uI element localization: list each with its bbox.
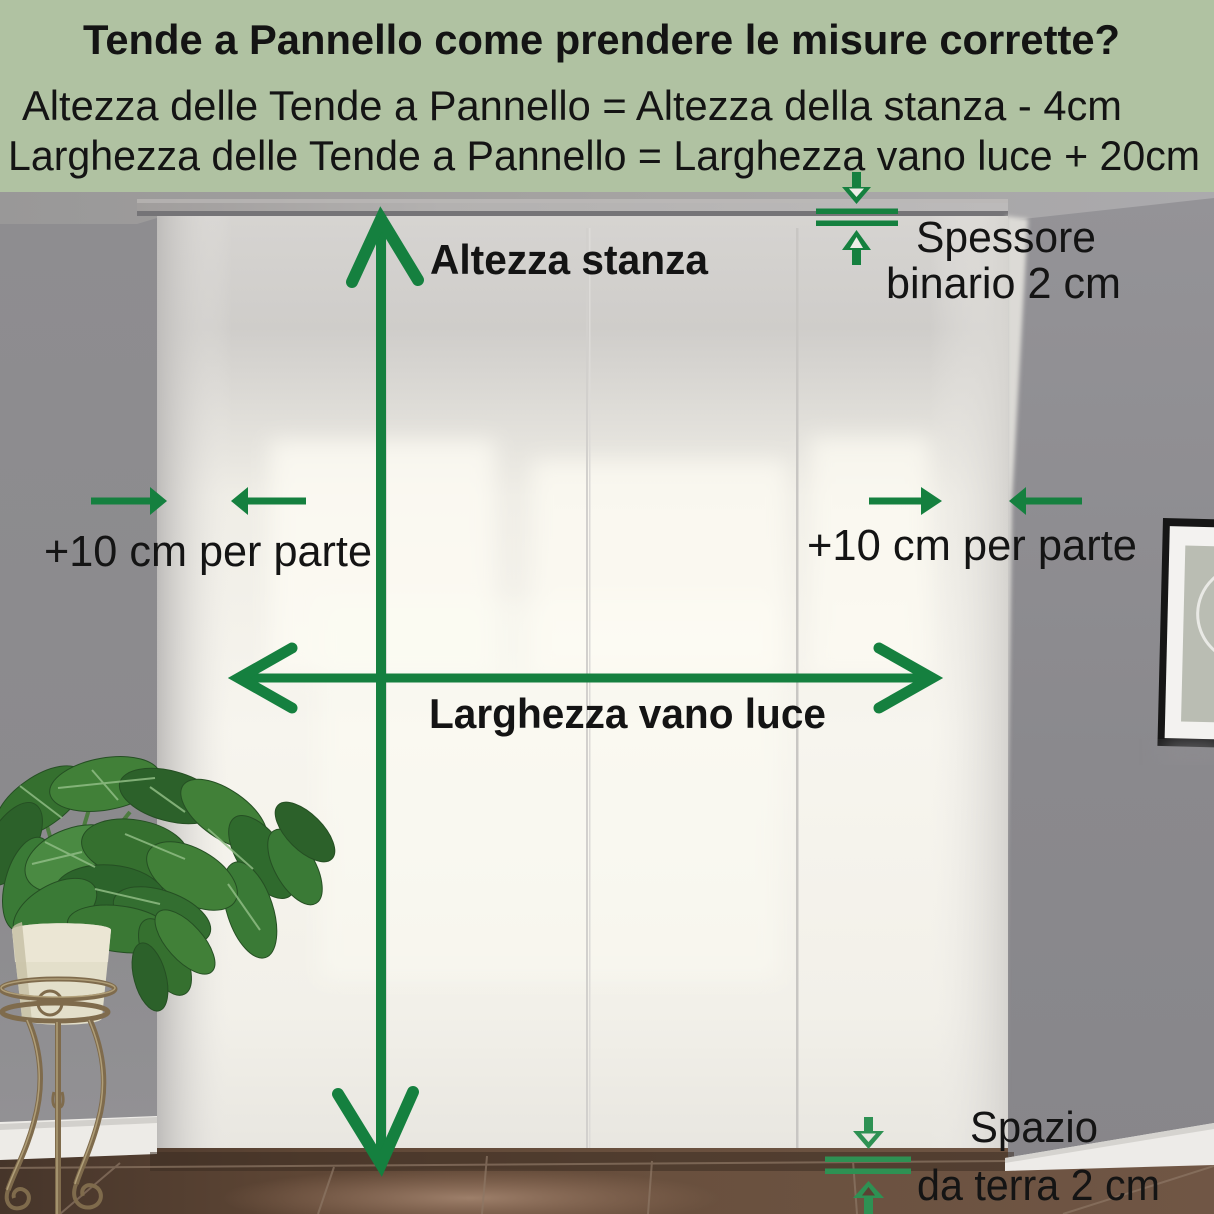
svg-text:binario 2 cm: binario 2 cm [886, 259, 1121, 308]
svg-text:Spessore: Spessore [916, 213, 1096, 262]
svg-text:+10 cm per parte: +10 cm per parte [44, 527, 372, 576]
svg-text:Altezza stanza: Altezza stanza [430, 236, 709, 283]
svg-text:Spazio: Spazio [970, 1103, 1098, 1152]
svg-text:Larghezza delle Tende a Pannel: Larghezza delle Tende a Pannello = Largh… [8, 132, 1200, 179]
svg-text:Tende a Pannello come prendere: Tende a Pannello come prendere le misure… [83, 16, 1120, 63]
svg-text:Larghezza vano luce: Larghezza vano luce [429, 690, 826, 737]
svg-text:+10 cm per parte: +10 cm per parte [807, 521, 1137, 570]
svg-text:da terra 2 cm: da terra 2 cm [917, 1161, 1160, 1210]
svg-text:Altezza delle Tende a Pannello: Altezza delle Tende a Pannello = Altezza… [22, 82, 1122, 129]
